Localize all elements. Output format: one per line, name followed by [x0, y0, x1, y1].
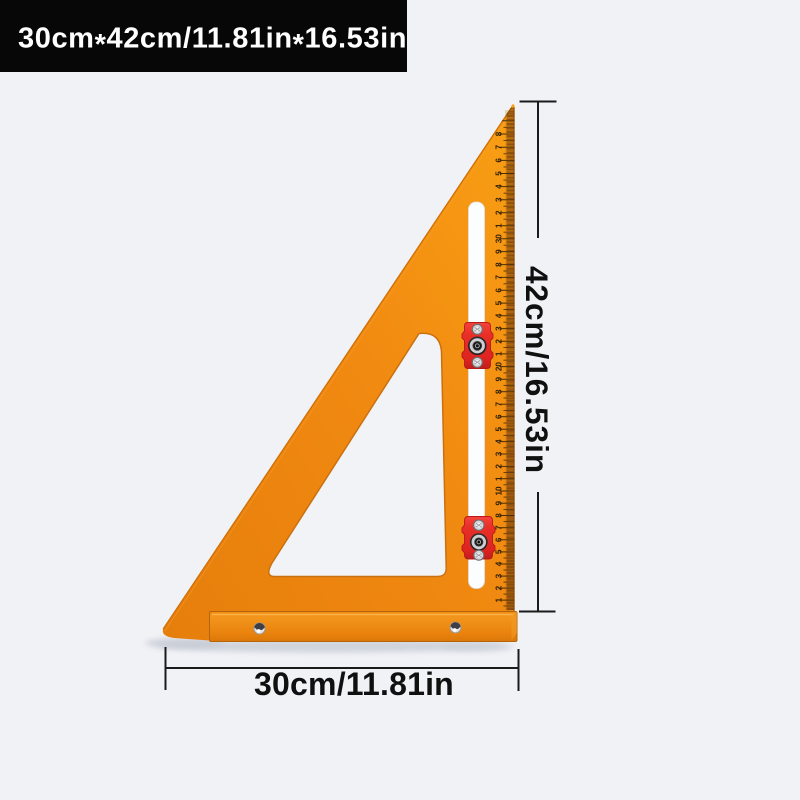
svg-text:3: 3 — [495, 197, 504, 202]
svg-text:30cm/11.81in: 30cm/11.81in — [254, 666, 454, 702]
svg-text:2: 2 — [495, 585, 504, 590]
svg-text:8: 8 — [495, 389, 504, 394]
svg-text:7: 7 — [495, 144, 504, 149]
svg-text:5: 5 — [495, 426, 504, 431]
svg-text:42cm/16.53in: 42cm/16.53in — [519, 266, 555, 474]
svg-text:2: 2 — [495, 339, 504, 344]
svg-text:3: 3 — [495, 326, 504, 331]
svg-text:6: 6 — [495, 414, 504, 419]
svg-text:3: 3 — [495, 451, 504, 456]
svg-text:10: 10 — [495, 486, 504, 496]
svg-text:6: 6 — [495, 537, 504, 542]
svg-text:8: 8 — [495, 513, 504, 518]
svg-text:3: 3 — [495, 573, 504, 578]
svg-text:1: 1 — [495, 223, 504, 228]
svg-text:8: 8 — [495, 131, 504, 136]
svg-text:4: 4 — [495, 184, 504, 189]
svg-text:6: 6 — [495, 158, 504, 163]
svg-text:9: 9 — [495, 376, 504, 381]
svg-text:5: 5 — [495, 300, 504, 305]
svg-text:4: 4 — [495, 439, 504, 444]
svg-text:9: 9 — [495, 249, 504, 254]
svg-text:1: 1 — [495, 351, 504, 356]
svg-text:7: 7 — [495, 401, 504, 406]
svg-text:2: 2 — [495, 210, 504, 215]
svg-text:7: 7 — [495, 525, 504, 530]
svg-text:7: 7 — [495, 275, 504, 280]
svg-text:2: 2 — [495, 464, 504, 469]
svg-text:4: 4 — [495, 313, 504, 318]
svg-text:9: 9 — [495, 500, 504, 505]
svg-text:5: 5 — [495, 171, 504, 176]
svg-text:1: 1 — [495, 476, 504, 481]
svg-text:30: 30 — [495, 234, 504, 244]
svg-text:1: 1 — [495, 597, 504, 602]
svg-text:8: 8 — [495, 262, 504, 267]
svg-text:20: 20 — [495, 362, 504, 372]
svg-text:6: 6 — [495, 288, 504, 293]
svg-text:5: 5 — [495, 549, 504, 554]
svg-text:4: 4 — [495, 561, 504, 566]
